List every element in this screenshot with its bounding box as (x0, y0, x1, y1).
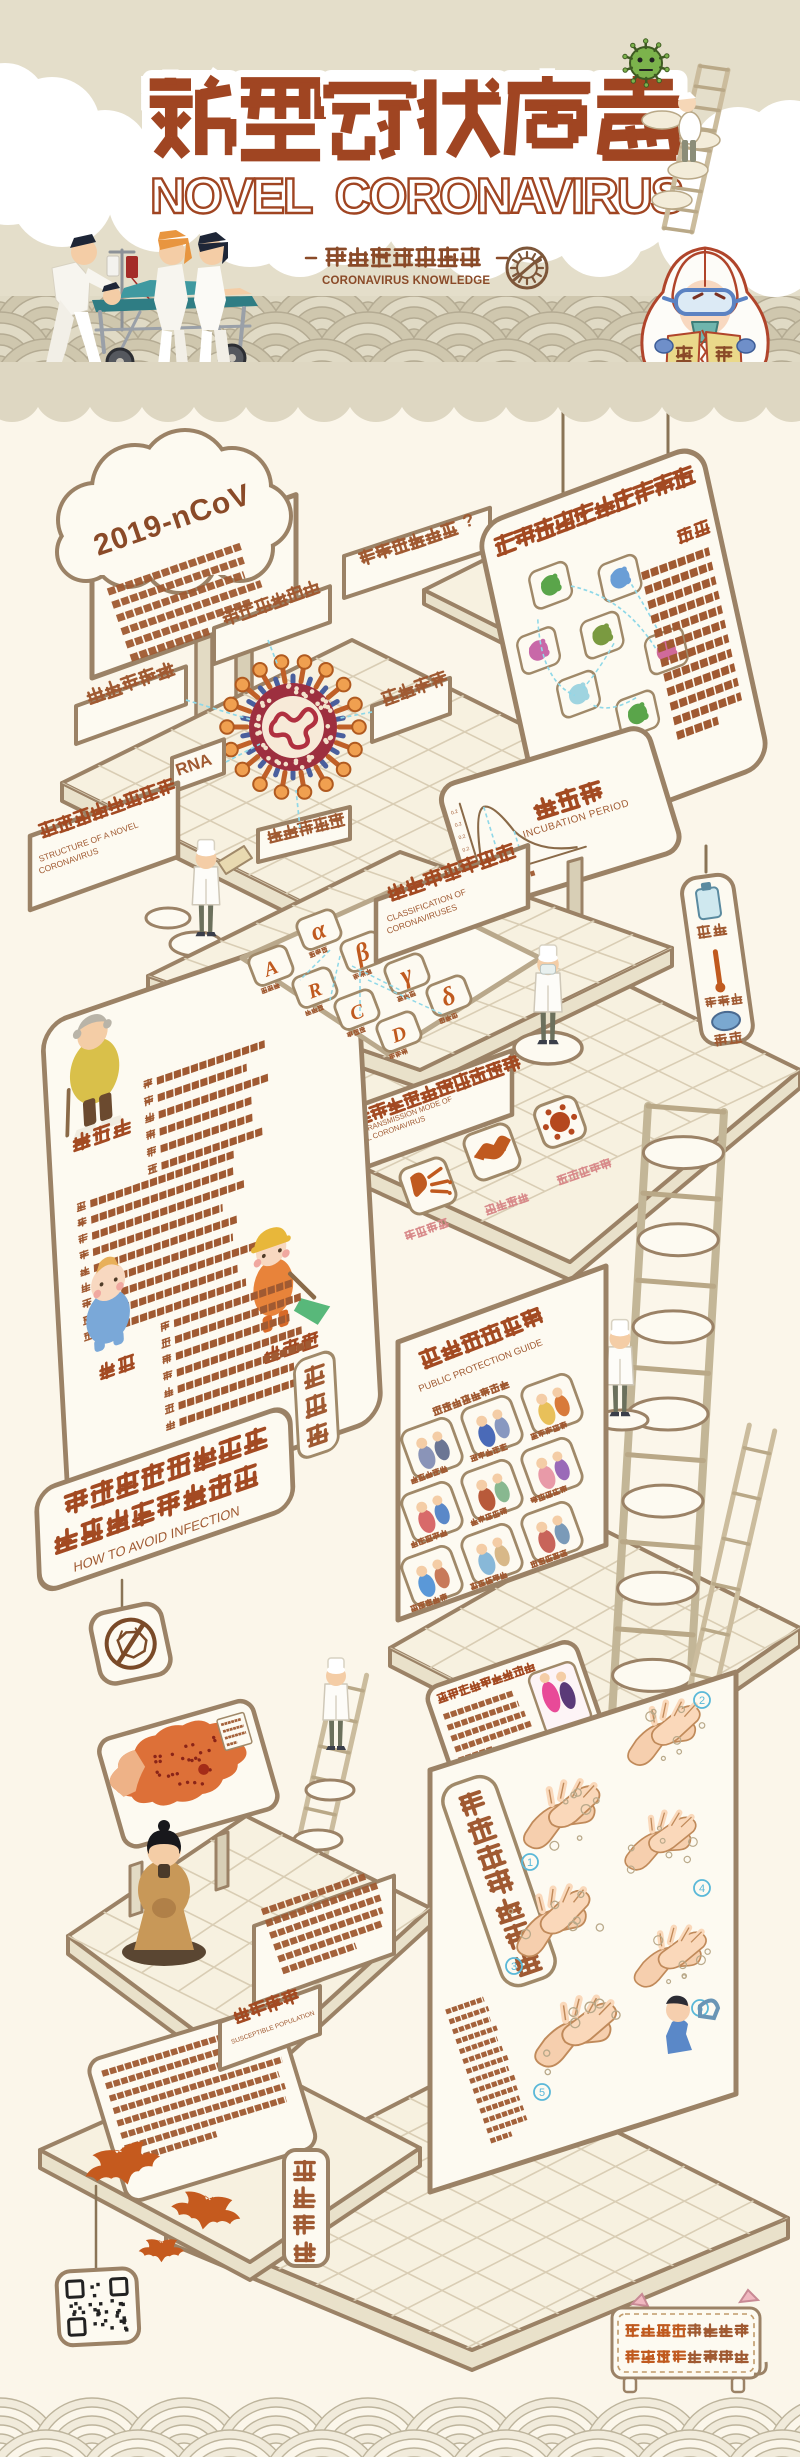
svg-text:3: 3 (511, 1961, 517, 1973)
svg-text:1: 1 (527, 1857, 533, 1869)
svg-text:4: 4 (699, 1883, 705, 1895)
svg-text:NOVEL CORONAVIRUS: NOVEL CORONAVIRUS (150, 168, 686, 224)
svg-text:CORONAVIRUS KNOWLEDGE: CORONAVIRUS KNOWLEDGE (322, 275, 490, 287)
svg-text:5: 5 (539, 2087, 545, 2099)
svg-text:2: 2 (699, 1695, 705, 1707)
